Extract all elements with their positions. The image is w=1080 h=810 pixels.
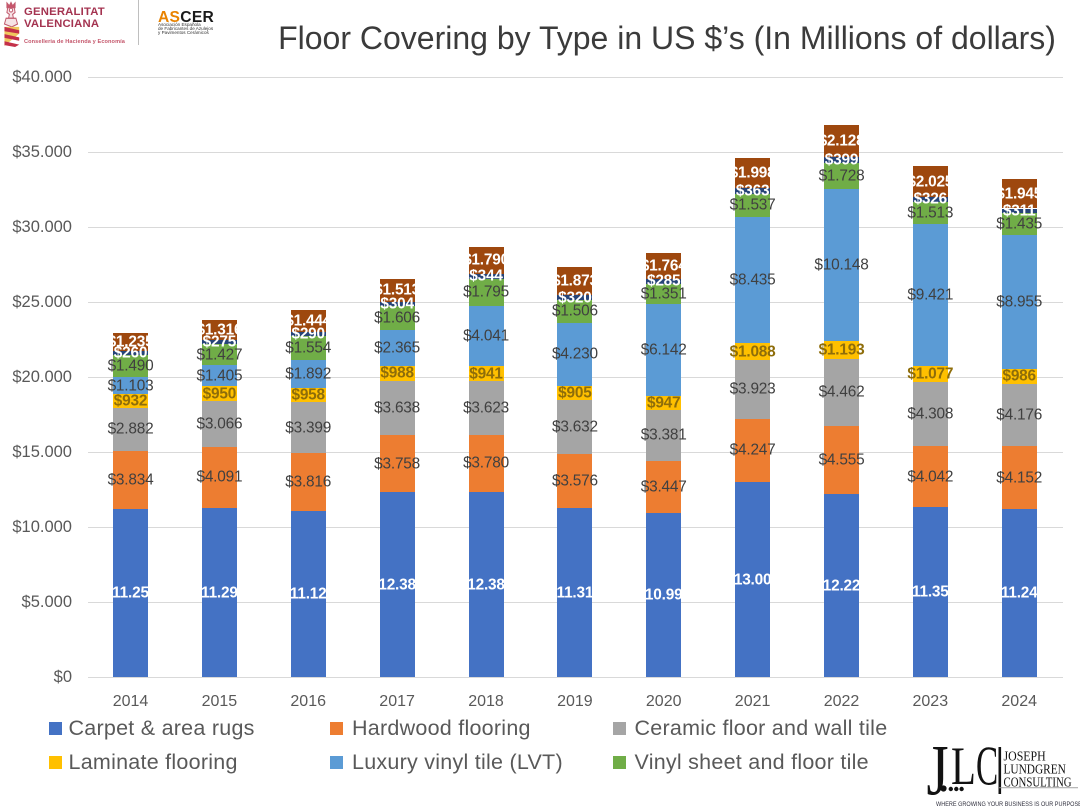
svg-text:J: J: [927, 738, 949, 810]
svg-text:C: C: [976, 738, 998, 797]
svg-text:WHERE GROWING YOUR BUSINESS IS: WHERE GROWING YOUR BUSINESS IS OUR PURPO…: [936, 801, 1080, 809]
